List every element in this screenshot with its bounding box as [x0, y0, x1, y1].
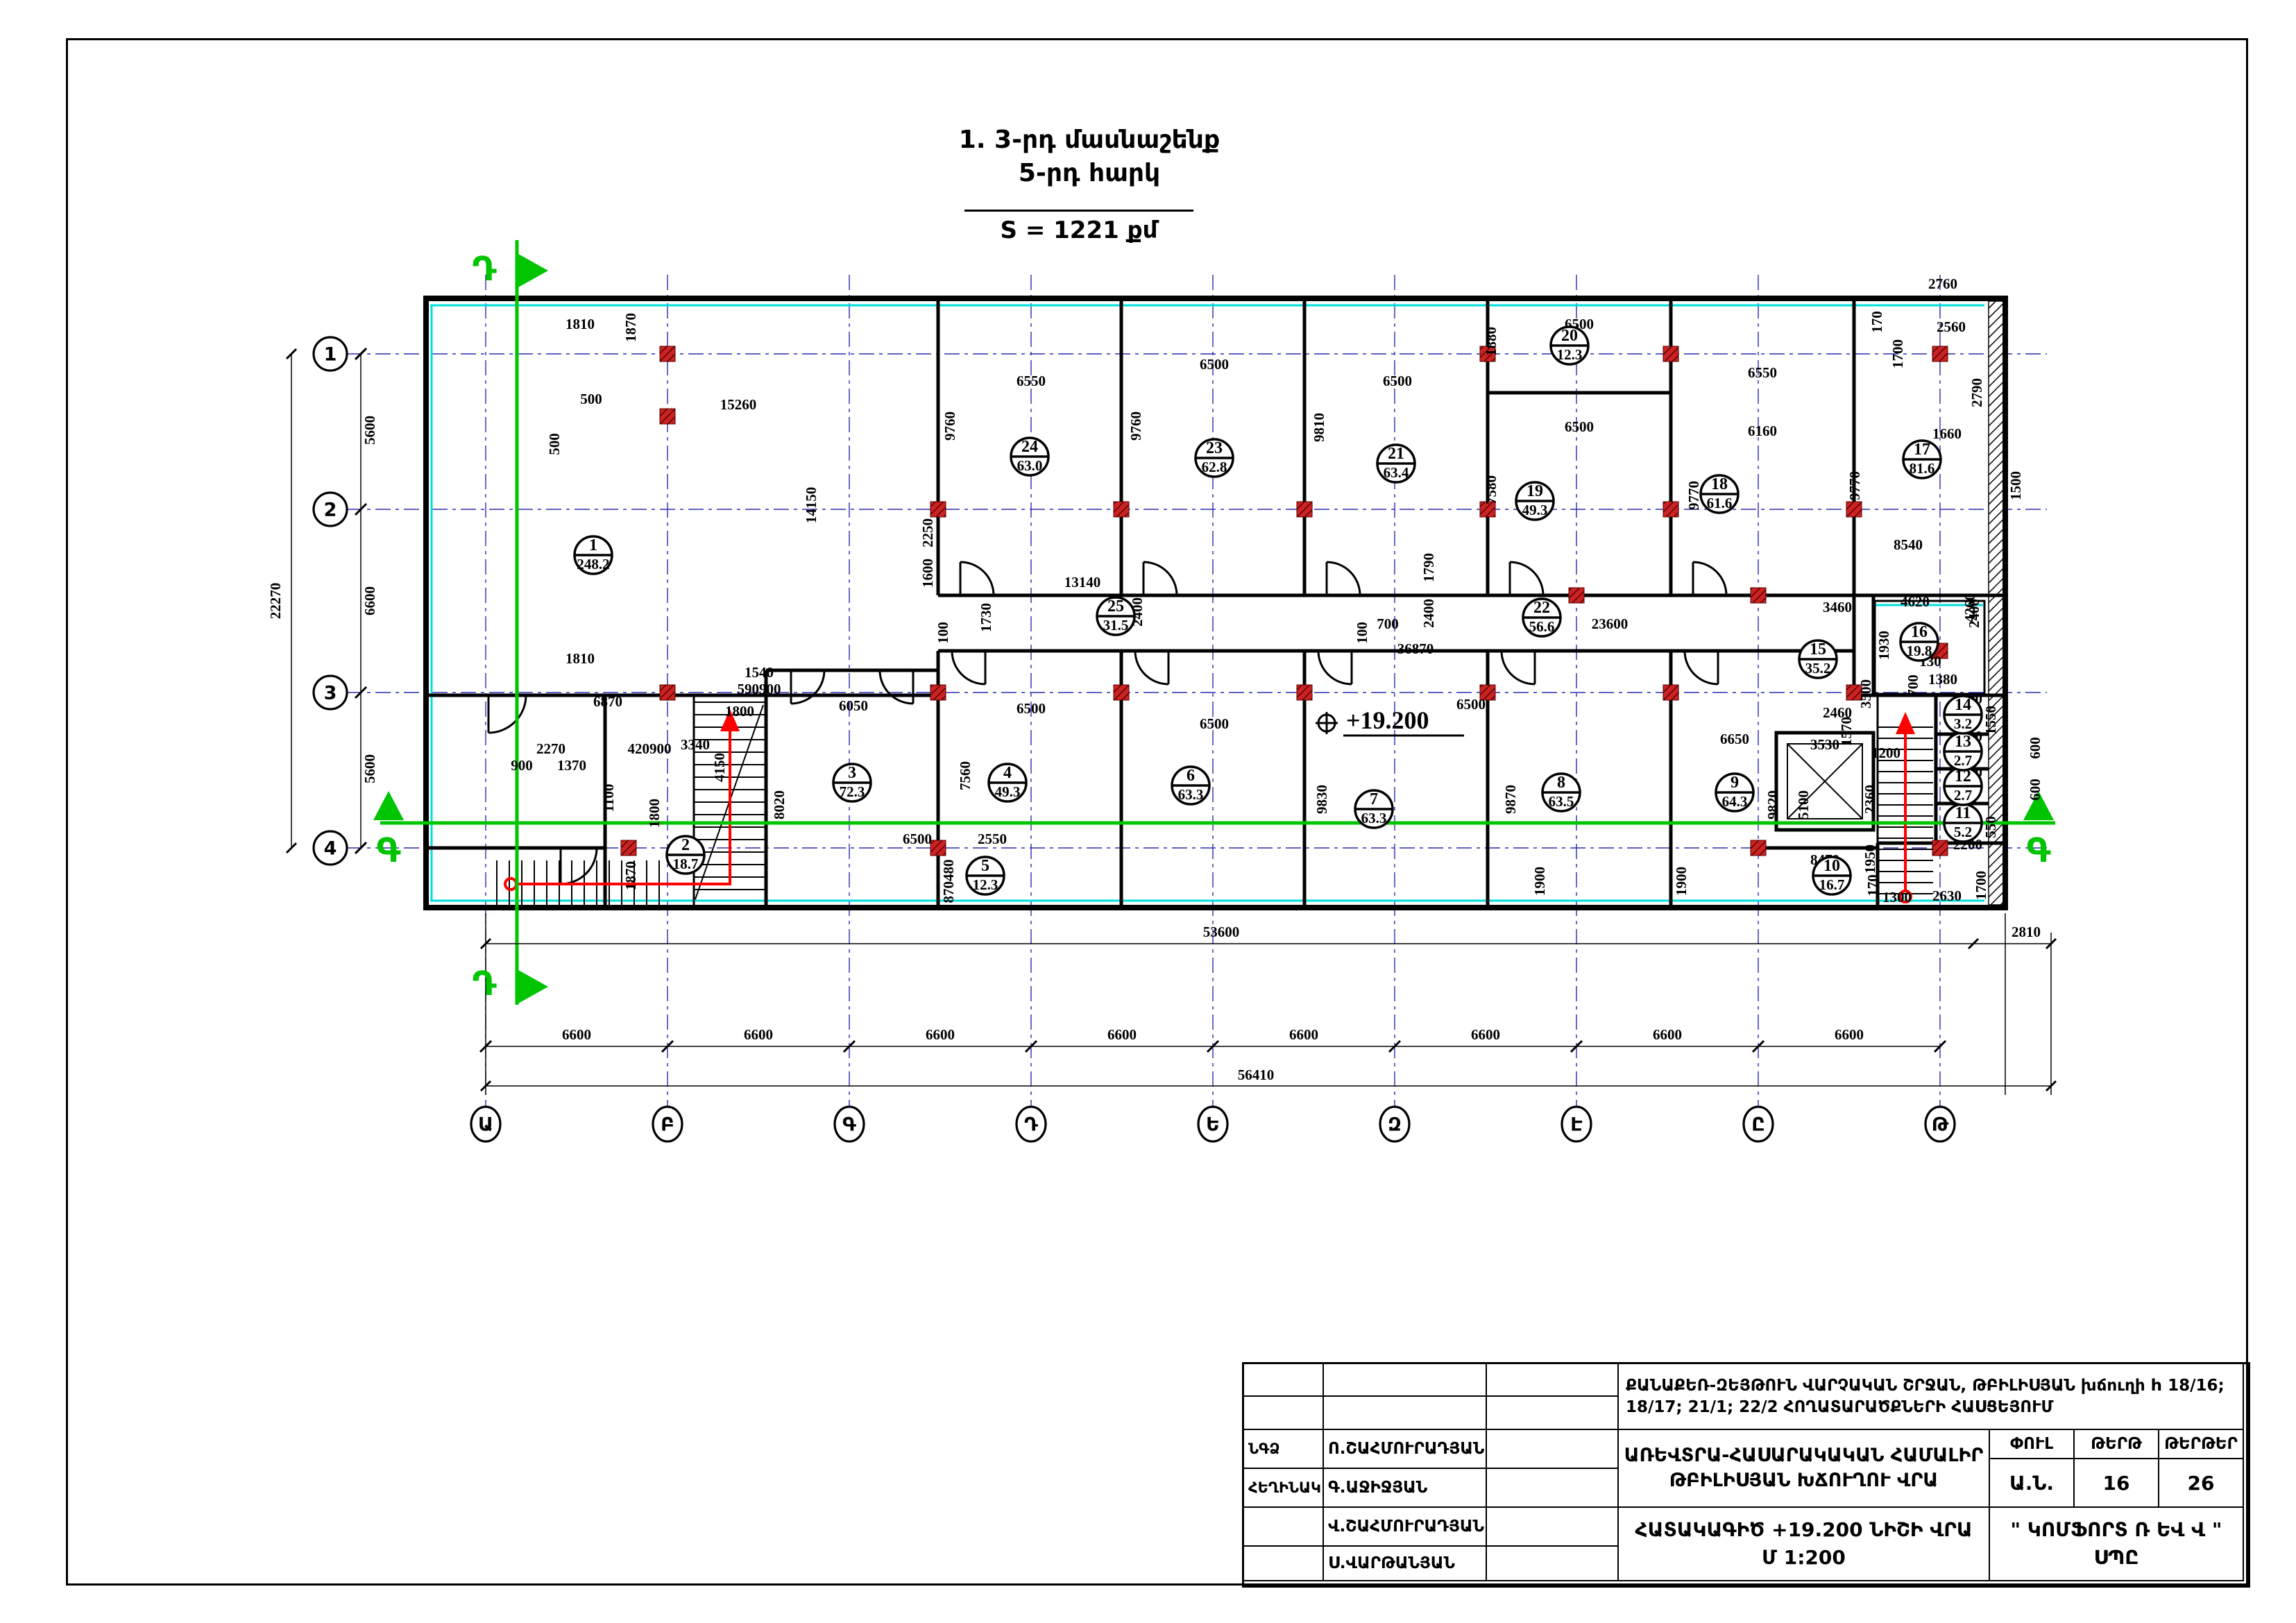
room-number: 10 — [1823, 857, 1840, 875]
dim-label: 6600 — [1471, 1026, 1500, 1043]
dim-label: 1500 — [2007, 471, 2024, 500]
dims-layer: 2227056006600560066006600660066006600660… — [267, 275, 2043, 1083]
dim-label: 1800 — [725, 703, 754, 720]
dim-label: 9760 — [942, 411, 958, 441]
room-number: 8 — [1557, 774, 1565, 792]
tb-stage-value: Ա.Ն. — [1990, 1459, 2075, 1508]
room-number: 21 — [1388, 445, 1404, 463]
tb-address: ՔԱՆԱՔԵՌ-ԶԵՅԹՈՒՆ ՎԱՐՉԱԿԱՆ ՇՐՋԱՆ, ԹԲԻԼԻՍՅԱ… — [1619, 1364, 2244, 1430]
tb-project: ԱՌԵՎՏՐԱ-ՀԱՍԱՐԱԿԱԿԱՆ ՀԱՄԱԼԻՐ ԹԲԻԼԻՍՅԱՆ ԽՃ… — [1619, 1430, 1990, 1508]
dim-label: 1800 — [646, 799, 663, 828]
tb-sheet-value: 16 — [2075, 1459, 2159, 1508]
room-area: 2.7 — [1954, 787, 1972, 804]
dim-label: 5600 — [362, 416, 378, 445]
stair-path-start — [505, 878, 516, 890]
section-arrow — [518, 254, 548, 287]
tb-cell — [1244, 1364, 1324, 1397]
tb-sheets-header: ԹԵՐԹԵՐ — [2159, 1430, 2244, 1459]
room-area: 35.2 — [1805, 660, 1831, 677]
dim-label: 170 — [1864, 874, 1881, 897]
dim-label: 600 — [2027, 737, 2043, 759]
room-area: 81.6 — [1910, 460, 1935, 477]
dim-label: 700 — [1377, 615, 1399, 632]
tb-role-name: Ս.ՎԱՐԹԱՆՅԱՆ — [1324, 1547, 1487, 1581]
dim-label: 6500 — [1456, 696, 1486, 713]
dim-label: 6550 — [1017, 373, 1046, 389]
dim-label: 100 — [1354, 622, 1370, 644]
dim-label: 600 — [2027, 779, 2043, 801]
tb-cell — [1487, 1547, 1619, 1581]
dim-label: 6600 — [744, 1026, 773, 1043]
axis-label: Բ — [661, 1114, 674, 1136]
dim-label: 500 — [580, 391, 602, 407]
tb-cell — [1487, 1364, 1619, 1397]
dim-label: 420900 — [628, 740, 672, 757]
dim-label: 23600 — [1592, 615, 1629, 632]
axis-label: Ը — [1751, 1114, 1764, 1136]
dim-label: 6650 — [1720, 731, 1749, 747]
room-number: 14 — [1955, 696, 1971, 714]
dim-label: 4150 — [711, 753, 728, 782]
dim-label: 15260 — [720, 396, 757, 413]
room-number: 18 — [1711, 475, 1728, 493]
dim-label: 6050 — [839, 697, 868, 714]
room-number: 4 — [1003, 764, 1012, 782]
dim-label: 1370 — [557, 757, 586, 774]
drawing-sheet: 1. 3-րդ մասնաշենք 5-րդ հարկ S = 1221 քմ … — [0, 0, 2296, 1623]
axis-label: Ե — [1206, 1114, 1220, 1136]
dimension-lines — [287, 349, 2056, 1095]
room-number: 22 — [1533, 599, 1550, 617]
dim-label: 2360 — [1862, 785, 1878, 814]
dim-label: 6500 — [1200, 356, 1229, 373]
room-area: 3.2 — [1954, 715, 1972, 732]
dim-label: 1660 — [1932, 425, 1962, 442]
room-area: 49.3 — [1522, 502, 1548, 518]
room-number: 15 — [1810, 640, 1826, 658]
dim-label: 1600 — [919, 559, 936, 588]
dim-label: 1730 — [978, 603, 994, 632]
dim-label: 1900 — [1673, 867, 1690, 896]
dim-label: 6600 — [362, 586, 378, 615]
dim-label: 6600 — [562, 1026, 591, 1043]
dim-label: 9770 — [1846, 471, 1863, 500]
dim-label: 6550 — [1748, 364, 1777, 381]
tb-cell — [1487, 1508, 1619, 1547]
tb-role-name: Գ.ԱՋԻՋՅԱՆ — [1324, 1469, 1487, 1508]
section-arrow — [518, 970, 548, 1003]
section-letter: Դ — [472, 965, 497, 1003]
tb-cell — [1324, 1364, 1487, 1397]
tb-cell — [1244, 1397, 1324, 1430]
room-area: 63.3 — [1178, 786, 1204, 803]
room-area: 49.3 — [995, 783, 1021, 800]
dim-label: 22270 — [267, 583, 284, 620]
room-number: 17 — [1914, 441, 1930, 459]
dim-label: 53600 — [1203, 924, 1240, 940]
room-number: 13 — [1955, 733, 1971, 751]
tb-sheet-header: ԹԵՐԹ — [2075, 1430, 2159, 1459]
dim-label: 1900 — [1531, 867, 1548, 896]
room-area: 18.7 — [673, 856, 699, 872]
room-number: 6 — [1187, 767, 1195, 785]
dim-label: 6600 — [926, 1026, 955, 1043]
room-area: 63.4 — [1384, 464, 1409, 481]
dim-label: 2270 — [536, 740, 566, 757]
dim-label: 9830 — [1313, 785, 1330, 814]
section-letter: Դ — [472, 250, 497, 289]
tb-role-name: Վ.ՇԱՀՄՈՒՐԱԴՅԱՆ — [1324, 1508, 1487, 1547]
dim-label: 6600 — [1107, 1026, 1137, 1043]
axis-label: Թ — [1932, 1114, 1949, 1136]
dim-label: 1550 — [1982, 706, 1999, 735]
room-area: 19.8 — [1907, 643, 1932, 659]
dim-label: 2760 — [1928, 275, 1957, 292]
room-number: 3 — [848, 764, 856, 782]
dim-label: 1790 — [1420, 553, 1437, 582]
tb-role-label — [1244, 1547, 1324, 1581]
dim-label: 590900 — [738, 681, 781, 697]
elevation-value: +19.200 — [1346, 706, 1429, 734]
dim-label: 56410 — [1238, 1067, 1275, 1083]
tb-role-label: ՆԳՁ — [1244, 1430, 1324, 1469]
dim-label: 6500 — [1565, 418, 1594, 435]
room-number: 19 — [1527, 482, 1543, 500]
room-area: 63.3 — [1361, 810, 1387, 826]
tb-cell — [1324, 1397, 1487, 1430]
dim-label: 5100 — [1795, 790, 1812, 819]
dim-label: 7560 — [957, 761, 973, 790]
room-number: 1 — [589, 536, 597, 554]
dim-label: 1100 — [600, 784, 617, 813]
dim-label: 1870 — [622, 861, 639, 890]
axis-label: 4 — [324, 838, 337, 860]
tb-company: " ԿՈՄՖՈՐՏ Ռ ԵՎ Վ " ՍՊԸ — [1990, 1508, 2244, 1581]
dim-label: 14150 — [803, 487, 819, 524]
axis-label: Զ — [1388, 1114, 1402, 1136]
dim-label: 1870 — [622, 313, 639, 342]
room-area: 5.2 — [1954, 824, 1972, 840]
dim-label: 6600 — [1653, 1026, 1682, 1043]
room-area: 63.0 — [1017, 457, 1043, 474]
dim-label: 100 — [935, 622, 951, 644]
tb-role-label — [1244, 1508, 1324, 1547]
dim-label: 13140 — [1064, 574, 1101, 590]
section-letter: Գ — [377, 831, 401, 870]
dim-label: 550 — [1982, 816, 1999, 838]
room-number: 5 — [981, 857, 989, 875]
dim-label: 900 — [511, 757, 533, 774]
room-area: 2.7 — [1954, 752, 1972, 769]
dim-label: 2630 — [1932, 887, 1962, 904]
room-number: 7 — [1370, 790, 1378, 808]
dim-label: 6870 — [593, 693, 622, 710]
dim-label: 2550 — [978, 831, 1007, 847]
dim-label: 700 — [1905, 674, 1921, 697]
tb-role-name: Ո.ՇԱՀՄՈՒՐԱԴՅԱՆ — [1324, 1430, 1487, 1469]
dim-label: 2560 — [1937, 318, 1966, 335]
dim-label: 6500 — [1017, 700, 1046, 717]
dim-label: 6600 — [1289, 1026, 1318, 1043]
dim-label: 9820 — [1764, 790, 1781, 819]
dim-label: 500 — [546, 433, 563, 455]
dim-label: 5600 — [362, 754, 378, 783]
axis-label: 2 — [324, 500, 337, 521]
dim-label: 4260 — [1962, 593, 1978, 622]
dim-label: 2400 — [1420, 599, 1437, 628]
dim-label: 1540 — [745, 664, 774, 681]
room-area: 56.6 — [1529, 618, 1555, 635]
dim-label: 1950 — [1862, 844, 1878, 874]
room-number: 11 — [1955, 804, 1971, 822]
section-arrow — [373, 791, 404, 820]
dim-label: 7580 — [1483, 475, 1499, 504]
axis-label: Ա — [478, 1114, 493, 1136]
dim-label: 9870 — [1502, 785, 1519, 814]
room-area: 64.3 — [1722, 793, 1748, 810]
tb-cell — [1487, 1469, 1619, 1508]
axis-label: Գ — [842, 1114, 856, 1136]
elevation-mark: +19.200 — [1316, 706, 1464, 736]
dim-label: 8540 — [1894, 536, 1923, 553]
dim-label: 2810 — [2012, 924, 2041, 940]
room-number: 25 — [1107, 597, 1124, 615]
dim-label: 2790 — [1968, 378, 1985, 407]
room-area: 12.3 — [973, 876, 998, 893]
dim-label: 6160 — [1748, 423, 1777, 439]
tb-cell — [1487, 1397, 1619, 1430]
room-area: 248.2 — [577, 556, 609, 572]
axis-label: 3 — [324, 683, 337, 704]
room-number: 20 — [1561, 327, 1578, 345]
dim-label: 1810 — [566, 316, 595, 332]
axis-label: Է — [1570, 1114, 1583, 1136]
dim-label: 3340 — [681, 736, 710, 753]
dim-label: 6500 — [1200, 715, 1229, 732]
room-area: 62.8 — [1202, 459, 1227, 475]
dim-label: 2460 — [1823, 704, 1852, 721]
room-number: 9 — [1730, 774, 1739, 792]
dim-label: 3500 — [1857, 679, 1874, 708]
dim-label: 1700 — [1973, 871, 1989, 900]
dim-label: 1930 — [1876, 631, 1892, 660]
dim-label: 3530 — [1810, 736, 1839, 753]
tb-cell — [1487, 1430, 1619, 1469]
east-wall-hatch — [1989, 301, 2004, 905]
dim-label: 1880 — [1483, 327, 1499, 356]
room-number: 24 — [1021, 438, 1038, 456]
dim-label: 8020 — [771, 790, 788, 819]
dim-label: 9810 — [1311, 413, 1327, 442]
dim-label: 1380 — [1928, 671, 1957, 688]
dim-label: 1700 — [1889, 339, 1906, 368]
room-number: 16 — [1911, 623, 1928, 641]
tb-role-label: ՀԵՂԻՆԱԿ — [1244, 1469, 1324, 1508]
dim-label: 6600 — [1835, 1026, 1864, 1043]
axis-label: 1 — [324, 344, 337, 366]
tb-stage-header: ՓՈՒԼ — [1990, 1430, 2075, 1459]
dim-label: 1300 — [1882, 889, 1912, 906]
dim-label: 1810 — [566, 650, 595, 667]
tb-sheets-value: 26 — [2159, 1459, 2244, 1508]
title-block: ՆԳՁ ՀԵՂԻՆԱԿ Ո.ՇԱՀՄՈՒՐԱԴՅԱՆ Գ.ԱՋԻՋՅԱՆ Վ.Շ… — [1242, 1362, 2250, 1588]
room-area: 72.3 — [840, 783, 865, 800]
room-area: 61.6 — [1707, 495, 1733, 511]
section-letter: Գ — [2027, 831, 2051, 870]
dim-label: 1200 — [1871, 745, 1900, 761]
room-area: 31.5 — [1103, 617, 1129, 634]
dim-label: 6500 — [1383, 373, 1412, 389]
dim-label: 170 — [1869, 311, 1885, 333]
tb-drawing-title: ՀԱՏԱԿԱԳԻԾ +19.200 ՆԻՇԻ ՎՐԱ Մ 1:200 — [1619, 1508, 1990, 1581]
dim-label: 1570 — [1838, 717, 1855, 746]
room-number: 2 — [681, 836, 690, 854]
dim-label: 6500 — [903, 831, 932, 847]
stair-right — [1878, 695, 1933, 908]
dim-label: 3460 — [1823, 599, 1852, 615]
dim-label: 9760 — [1128, 411, 1144, 441]
dim-label: 870480 — [940, 860, 957, 903]
room-number: 23 — [1206, 439, 1223, 457]
room-area: 12.3 — [1557, 346, 1583, 363]
dim-label: 2250 — [919, 518, 936, 547]
room-area: 16.7 — [1819, 876, 1845, 893]
room-area: 63.5 — [1549, 793, 1574, 810]
dim-label: 36870 — [1397, 640, 1434, 657]
dim-label: 4620 — [1900, 593, 1930, 610]
stair-direction-arrow — [1896, 712, 1915, 734]
axis-label: Դ — [1024, 1114, 1038, 1136]
